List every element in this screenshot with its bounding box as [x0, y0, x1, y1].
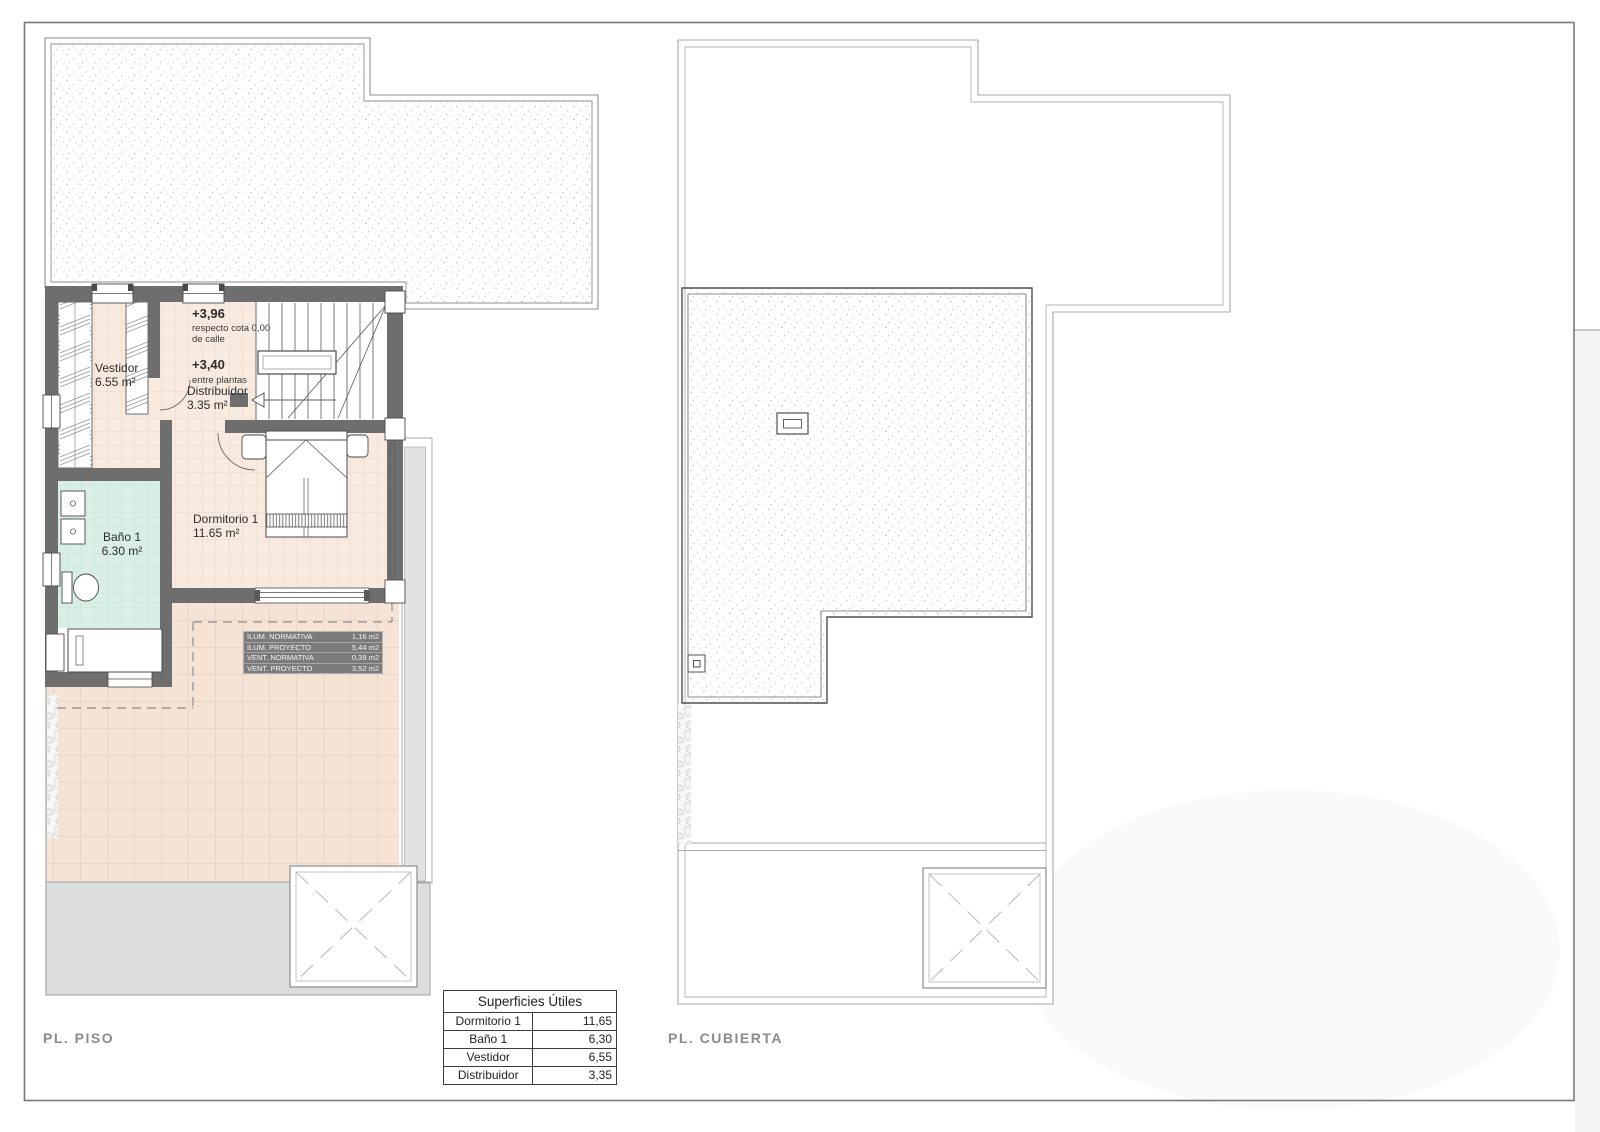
norm-table: ILUM. NORMATIVA 1,16 m2 ILUM. PROYECTO 5…: [243, 631, 383, 674]
watermark-shadow: [1020, 790, 1560, 1110]
plan-piso: [43, 38, 598, 995]
side-wall-strip: [402, 438, 432, 883]
skylight-symbol: [290, 866, 417, 987]
areas-table: Superficies Útiles Dormitorio 1 11,65 Ba…: [443, 990, 617, 1085]
table-row: Baño 1 6,30: [444, 1031, 616, 1049]
chimney-symbol: [777, 413, 808, 434]
piso-upper-terrace: [45, 38, 598, 309]
roof-vent-symbol: [688, 655, 705, 672]
norm-table-row: VENT. NORMATIVA 0,39 m2: [244, 652, 382, 663]
stone-border: [47, 695, 58, 838]
bathtub-icon: [46, 629, 162, 672]
room-label-dormitorio: Dormitorio 1 11.65 m²: [193, 513, 258, 540]
table-row: Dormitorio 1 11,65: [444, 1013, 616, 1031]
norm-table-row: ILUM. PROYECTO 5,44 m2: [244, 642, 382, 653]
toilet-icon: [62, 572, 99, 603]
level-annotation-note: respecto cota 0,00: [192, 323, 270, 334]
norm-table-row: VENT. PROYECTO 3,52 m2: [244, 663, 382, 674]
drawing-sheet: Vestidor 6.55 m² +3,96 respecto cota 0,0…: [0, 0, 1600, 1132]
stone-border: [678, 705, 691, 845]
window: [43, 395, 60, 428]
room-label-vestidor: Vestidor 6.55 m²: [95, 362, 138, 389]
table-row: Vestidor 6,55: [444, 1049, 616, 1067]
plan-title-cubierta: PL. CUBIERTA: [668, 1030, 783, 1046]
skylight-symbol: [923, 868, 1046, 988]
window: [183, 284, 224, 303]
plan-title-piso: PL. PISO: [43, 1030, 114, 1046]
level-annotation-note: de calle: [192, 334, 225, 345]
areas-table-title: Superficies Útiles: [444, 991, 616, 1013]
sliding-door: [255, 588, 369, 603]
window: [92, 284, 133, 303]
room-label-distribuidor: Distribuidor 3.35 m²: [187, 385, 248, 412]
floor-plan-drawing: [0, 0, 1600, 1132]
norm-table-row: ILUM. NORMATIVA 1,16 m2: [244, 632, 382, 642]
page-edge-shade: [1575, 330, 1600, 1132]
window: [43, 553, 60, 586]
window: [108, 671, 152, 687]
table-row: Distribuidor 3,35: [444, 1067, 616, 1084]
room-label-bano: Baño 1 6.30 m²: [96, 531, 148, 558]
level-annotation-value: +3,40: [192, 357, 225, 372]
level-annotation-value: +3,96: [192, 306, 225, 321]
